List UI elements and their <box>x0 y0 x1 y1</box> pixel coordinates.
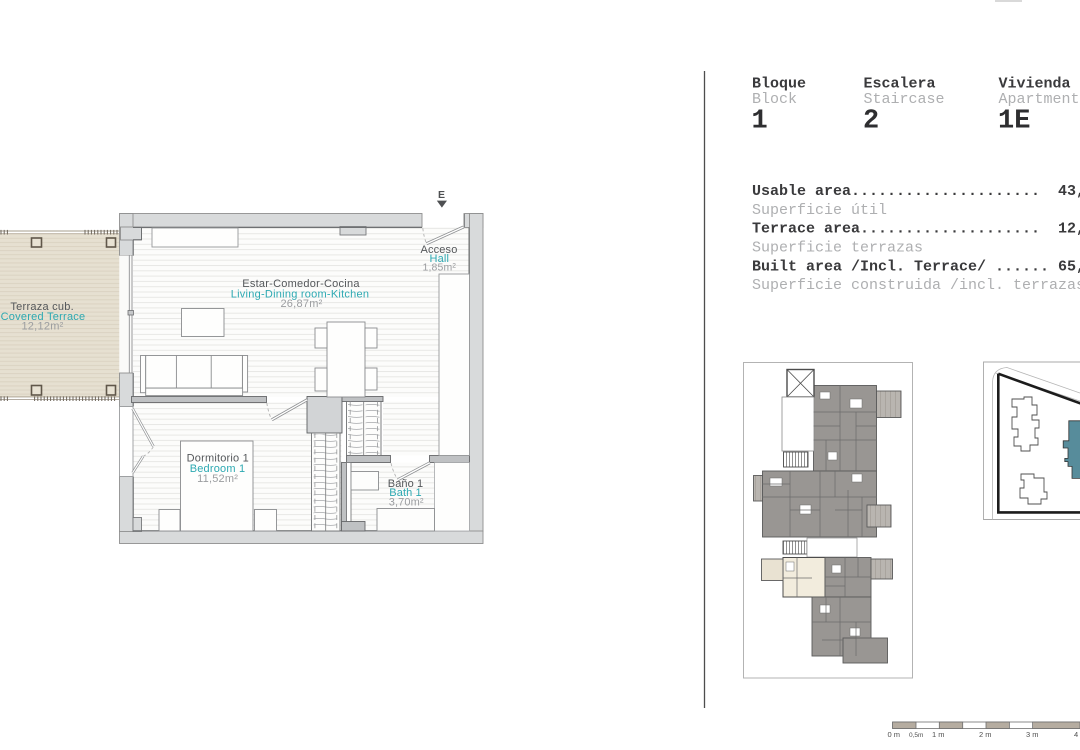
svg-text:0 m: 0 m <box>888 730 901 739</box>
svg-text:43,: 43, <box>1058 183 1080 200</box>
svg-text:11,52m²: 11,52m² <box>197 473 238 485</box>
svg-text:2 m: 2 m <box>979 730 992 739</box>
svg-text:Block: Block <box>752 91 797 108</box>
svg-text:Terrace area..................: Terrace area.................... <box>752 221 1040 238</box>
svg-text:3,70m²: 3,70m² <box>389 497 424 509</box>
svg-text:2: 2 <box>863 106 879 136</box>
svg-text:1: 1 <box>752 106 768 136</box>
svg-text:Superficie construida /incl. t: Superficie construida /incl. terrazas <box>752 277 1080 294</box>
svg-text:Apartment: Apartment <box>999 91 1080 108</box>
svg-text:1E: 1E <box>998 106 1030 136</box>
svg-text:4: 4 <box>1074 730 1078 739</box>
svg-text:Superficie terrazas: Superficie terrazas <box>752 240 923 257</box>
svg-text:Superficie útil: Superficie útil <box>752 202 887 219</box>
svg-text:Built area /Incl. Terrace/ ...: Built area /Incl. Terrace/ ...... <box>752 258 1049 275</box>
svg-text:1 m: 1 m <box>932 730 945 739</box>
svg-text:12,12m²: 12,12m² <box>21 320 63 332</box>
svg-text:0,5m: 0,5m <box>909 732 923 739</box>
svg-text:E: E <box>438 189 445 201</box>
svg-text:Usable area...................: Usable area..................... <box>752 183 1040 200</box>
svg-text:26,87m²: 26,87m² <box>280 298 322 310</box>
svg-text:1,85m²: 1,85m² <box>423 262 457 274</box>
svg-text:3 m: 3 m <box>1026 730 1039 739</box>
svg-text:65,: 65, <box>1058 258 1080 275</box>
svg-text:12,: 12, <box>1058 221 1080 238</box>
svg-text:Staircase: Staircase <box>864 91 945 108</box>
